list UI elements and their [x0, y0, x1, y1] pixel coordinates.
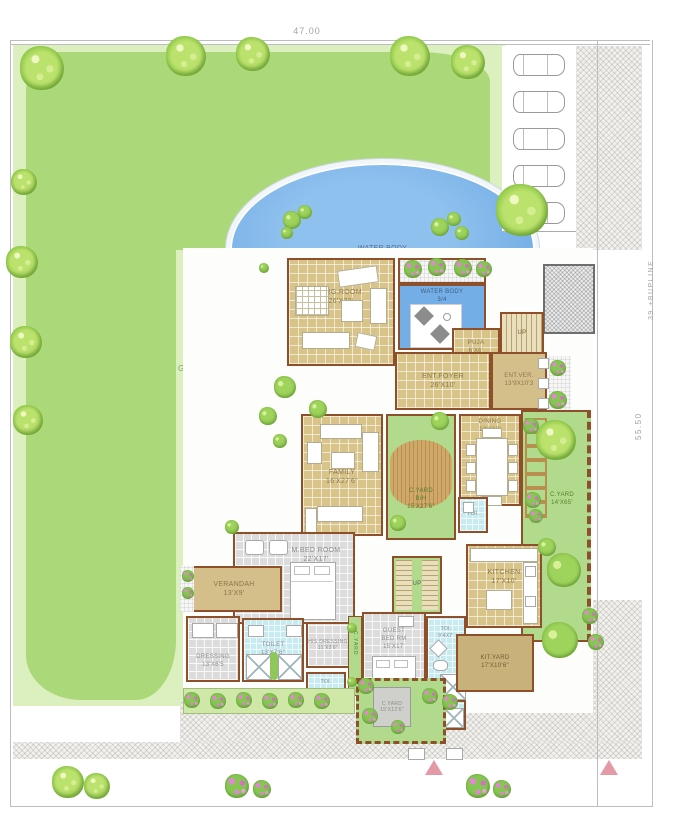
car-icon	[513, 202, 565, 224]
washbasin	[286, 625, 302, 637]
parking-stall	[502, 120, 576, 158]
stepping-path	[525, 418, 547, 518]
room-size: 26'X10'	[430, 381, 455, 390]
coffee-table	[331, 452, 355, 469]
driveway-right-top	[576, 46, 642, 250]
room-label: TOILET	[262, 642, 285, 650]
flower-icon	[253, 780, 271, 798]
room-size: 15'X17'	[383, 644, 405, 652]
chair	[508, 480, 518, 492]
room-dining: DINING 12'X18'	[459, 414, 521, 506]
room-label: PUJA	[468, 340, 485, 348]
parking-stall	[502, 157, 576, 195]
hob	[525, 566, 536, 577]
room-cyard-bh: C.YARD B/H 15'X27'6"	[386, 414, 456, 540]
room-label: GUEST	[383, 628, 405, 636]
parking-stall	[502, 46, 576, 84]
sofa	[320, 424, 362, 439]
sofa	[337, 265, 379, 287]
chair	[482, 428, 502, 438]
room-family: FAMILY 16'X27'6"	[301, 414, 383, 536]
parking-stall	[502, 194, 576, 232]
up-label: UP	[518, 330, 527, 338]
nightstand	[269, 540, 288, 555]
room-label: C.YARD	[382, 701, 402, 708]
stairs-pool: UP	[500, 312, 544, 356]
shower	[246, 654, 272, 680]
room-size: 17'X10'	[491, 577, 516, 586]
parking-stall	[502, 83, 576, 121]
flower-bed-strip	[183, 688, 355, 714]
room-size: 13'9X10'3	[504, 381, 533, 389]
sofa	[302, 332, 350, 349]
pool-deck	[543, 264, 595, 334]
flower-icon	[466, 774, 490, 798]
flower-icon	[225, 774, 249, 798]
room-label: ENT.FOYER	[422, 372, 464, 381]
shower	[278, 654, 302, 680]
dining-table	[476, 438, 508, 496]
washbasin	[429, 639, 447, 657]
washbasin	[463, 502, 474, 513]
paving-band	[13, 742, 642, 759]
car-icon	[513, 128, 565, 150]
boundary-left	[10, 40, 11, 806]
dim-build-line: 39 +BUPLINE	[648, 200, 655, 320]
boundary-right-outer	[652, 40, 653, 806]
planter-strip	[398, 258, 486, 284]
verandah-planter	[180, 566, 194, 612]
dim-plot-depth: 55.50	[634, 380, 643, 440]
flower-icon	[493, 780, 511, 798]
column	[538, 358, 549, 369]
sofa	[317, 506, 363, 522]
garden-lawn-left	[26, 52, 176, 700]
room-size: 14'X65'	[551, 500, 573, 508]
counter	[470, 548, 538, 562]
up-label: UP	[413, 581, 422, 589]
stairs-center: UP	[392, 556, 442, 614]
deck	[390, 440, 452, 508]
room-label: DRESSING	[196, 654, 230, 662]
chair	[508, 462, 518, 474]
gate-post	[446, 748, 463, 760]
room-size: 16'X27'6"	[326, 477, 358, 486]
room-size: 9'4X7'	[438, 633, 453, 640]
chair	[466, 462, 476, 474]
room-label2: BED RM	[381, 636, 406, 644]
sink	[525, 596, 536, 607]
room-his-dressing: HIS DRESSING 11'X3'6"	[306, 622, 350, 668]
boundary-right-inner	[597, 40, 598, 806]
room-label: KITCHEN	[488, 568, 521, 577]
room-dressing: DRESSING 13'X6'5	[186, 616, 240, 682]
room-label: FAMILY	[329, 468, 355, 477]
wardrobe	[216, 623, 238, 638]
chair	[355, 332, 378, 351]
column	[538, 398, 549, 409]
site-plan: GARDEN 47.00 39 +BUPLINE 55.50 WATER BOD…	[0, 0, 680, 813]
gate-marker	[600, 760, 618, 775]
room-size: 13'X9'	[224, 589, 245, 598]
boundary-top2	[10, 44, 650, 45]
room-label: KIT.YARD	[481, 655, 510, 663]
hedge	[270, 652, 278, 680]
room-label: TOI.	[441, 626, 452, 633]
car-icon	[513, 54, 565, 76]
tree-icon	[52, 766, 84, 798]
nightstand	[245, 540, 264, 555]
room-size: 13'X6'5	[202, 662, 224, 670]
room-size: 15'X12'6"	[380, 707, 404, 714]
room-kit-yard: KIT.YARD 17'X10'6"	[456, 634, 534, 692]
washbasin	[248, 625, 264, 637]
chair	[466, 444, 476, 456]
dim-plot-width: 47.00	[14, 26, 600, 36]
washer	[444, 708, 464, 728]
chair	[508, 444, 518, 456]
boundary-top	[10, 40, 650, 41]
gate-post	[408, 748, 425, 760]
chair	[466, 480, 476, 492]
room-ent-ver: ENT.VER. 13'9X10'3	[491, 352, 547, 410]
chair	[307, 442, 322, 464]
room-label: C.YARD	[352, 631, 358, 656]
room-label: DINING	[479, 419, 502, 427]
tv-unit	[305, 508, 317, 534]
wc	[433, 660, 448, 671]
room-cyard-bottom: C.YARD 15'X12'6"	[356, 678, 446, 744]
room-toi-a: TOI.	[458, 497, 488, 533]
gate-marker	[425, 760, 443, 775]
room-label: M.BED ROOM	[292, 546, 341, 555]
room-verandah: VERANDAH 13'X9'	[186, 566, 282, 612]
boundary-bottom	[10, 806, 653, 807]
room-label: HIS DRESSING	[308, 639, 347, 646]
room-label: VERANDAH	[213, 580, 254, 589]
wardrobe	[192, 623, 214, 638]
sofa	[362, 432, 379, 472]
room-size: 11'X3'6"	[318, 645, 338, 652]
room-label: C.YARD	[550, 492, 574, 500]
bed	[290, 562, 336, 620]
tree-icon	[84, 773, 110, 799]
room-ent-foyer: ENT.FOYER 26'X10'	[395, 352, 491, 410]
coffee-table	[341, 300, 363, 322]
room-drg-room: DRG.ROOM 26'X23'	[287, 258, 395, 366]
shelf	[295, 286, 329, 316]
car-icon	[513, 165, 565, 187]
room-label: WATER BODY	[421, 289, 464, 297]
entry-planter	[549, 356, 571, 412]
car-icon	[513, 91, 565, 113]
room-size: 17'X10'6"	[481, 663, 509, 671]
side-table	[398, 616, 414, 627]
room-label: TOI.	[321, 679, 332, 686]
room-toilet: TOILET 13'X7'6"	[242, 618, 304, 682]
island	[486, 590, 512, 610]
sofa	[370, 288, 387, 324]
shed: C.YARD 15'X12'6"	[373, 687, 411, 727]
room-kitchen: KITCHEN 17'X10'	[466, 544, 542, 628]
room-label: ENT.VER.	[504, 373, 533, 381]
column	[538, 378, 549, 389]
